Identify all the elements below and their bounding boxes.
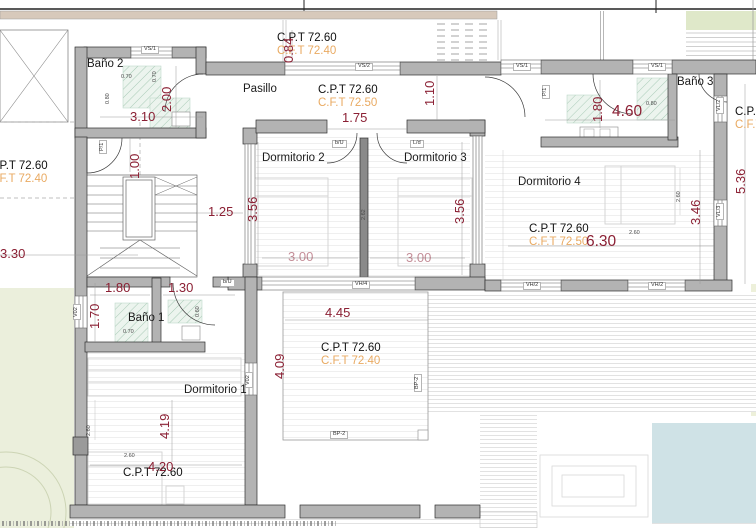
level-cft-label: C.F.T 72.50 <box>318 98 377 110</box>
opening-tag: VS/2 <box>355 63 373 71</box>
room-label-dormitorio-1: Dormitorio 1 <box>184 385 247 397</box>
opening-tag: b/U <box>332 140 347 148</box>
dimension-label: 6.30 <box>586 234 616 250</box>
level-cpt-label: C.P.T 72.60 <box>735 107 756 119</box>
room-label-baño-1: Baño 1 <box>128 313 164 325</box>
opening-tag: P/1 <box>99 140 107 154</box>
dimension-label: 3.10 <box>130 110 155 123</box>
small-dimension-label: 0.80 <box>106 93 112 104</box>
opening-tag: VL/2 <box>716 97 724 114</box>
small-dimension-label: 0.70 <box>153 71 159 82</box>
room-label-baño-3: Baño 3 <box>677 77 713 89</box>
opening-tag: b/U <box>220 279 235 287</box>
dimension-label: 3.56 <box>246 197 259 222</box>
small-dimension-label: 2.60 <box>124 454 135 460</box>
dimension-label: 1.00 <box>128 154 141 179</box>
opening-tag: VL/3 <box>716 203 724 220</box>
dimension-label: 4.20 <box>148 460 173 473</box>
room-label-dormitorio-3: Dormitorio 3 <box>404 153 467 165</box>
dimension-label: 3.56 <box>453 199 466 224</box>
dimension-label: 2.00 <box>160 87 173 112</box>
room-label-dormitorio-4: Dormitorio 4 <box>518 177 581 189</box>
small-dimension-label: 0.70 <box>123 330 134 336</box>
room-label-pasillo: Pasillo <box>243 84 277 96</box>
level-cpt-label: C.P.T 72.60 <box>0 161 48 173</box>
dimension-label: 1.75 <box>342 111 367 124</box>
dimension-label: 3.00 <box>406 251 431 264</box>
opening-tag: L/d <box>410 140 424 148</box>
dimension-label: 4.45 <box>325 306 350 319</box>
dimension-label: 5.36 <box>734 169 747 194</box>
dimension-label: 3.00 <box>288 250 313 263</box>
level-cpt-label: C.P.T 72.60 <box>321 343 381 355</box>
opening-tag: VH/4 <box>352 281 370 289</box>
opening-tag: VS/1 <box>513 63 531 71</box>
small-dimension-label: 2.62 <box>362 209 368 220</box>
dimension-label: 4.09 <box>273 354 286 379</box>
dimension-label: 1.80 <box>105 281 130 294</box>
opening-tag: VH/2 <box>648 282 666 290</box>
level-cft-label: C.F.T 72.40 <box>321 356 380 368</box>
dimension-label: 1.70 <box>88 304 101 329</box>
dimension-label: 1.10 <box>423 81 436 106</box>
room-label-dormitorio-2: Dormitorio 2 <box>262 153 325 165</box>
dimension-label: 3.30 <box>0 247 25 260</box>
dimension-label: 0.84 <box>282 38 295 63</box>
small-dimension-label: 2.60 <box>87 425 93 436</box>
level-cft-label: C.F.T 72.40 <box>0 174 47 186</box>
dimension-label: 4.60 <box>612 104 642 120</box>
opening-tag: V02 <box>73 304 81 320</box>
titleblock-text-strip <box>2 521 338 526</box>
dimension-label: 4.19 <box>158 414 171 439</box>
small-dimension-label: 0.80 <box>646 102 657 108</box>
small-dimension-label: 2.60 <box>677 191 683 202</box>
small-dimension-label: 2.60 <box>629 231 640 237</box>
level-cft-label: C.F.T 72.50 <box>735 120 756 132</box>
opening-tag: VH/2 <box>523 282 541 290</box>
small-dimension-label: 0.60 <box>196 306 202 317</box>
opening-tag: VS/1 <box>648 63 666 71</box>
floorplan-page: Baño 2PasilloDormitorio 2Dormitorio 3Dor… <box>0 0 756 528</box>
annotation-layer: Baño 2PasilloDormitorio 2Dormitorio 3Dor… <box>0 0 756 528</box>
small-dimension-label: 0.70 <box>121 75 132 81</box>
level-cft-label: C.F.T 72.50 <box>529 237 588 249</box>
dimension-label: 3.46 <box>689 200 702 225</box>
dimension-label: 1.30 <box>168 281 193 294</box>
opening-tag: BP-2 <box>330 431 348 439</box>
level-cpt-label: C.P.T 72.60 <box>529 224 589 236</box>
opening-tag: V02 <box>245 372 253 388</box>
opening-tag: P/1 <box>542 85 550 99</box>
opening-tag: BP-2 <box>414 374 422 392</box>
dimension-label: 1.80 <box>591 97 604 122</box>
dimension-label: 1.25 <box>208 205 233 218</box>
room-label-baño-2: Baño 2 <box>87 59 123 71</box>
level-cpt-label: C.P.T 72.60 <box>318 85 378 97</box>
opening-tag: VS/1 <box>141 46 159 54</box>
